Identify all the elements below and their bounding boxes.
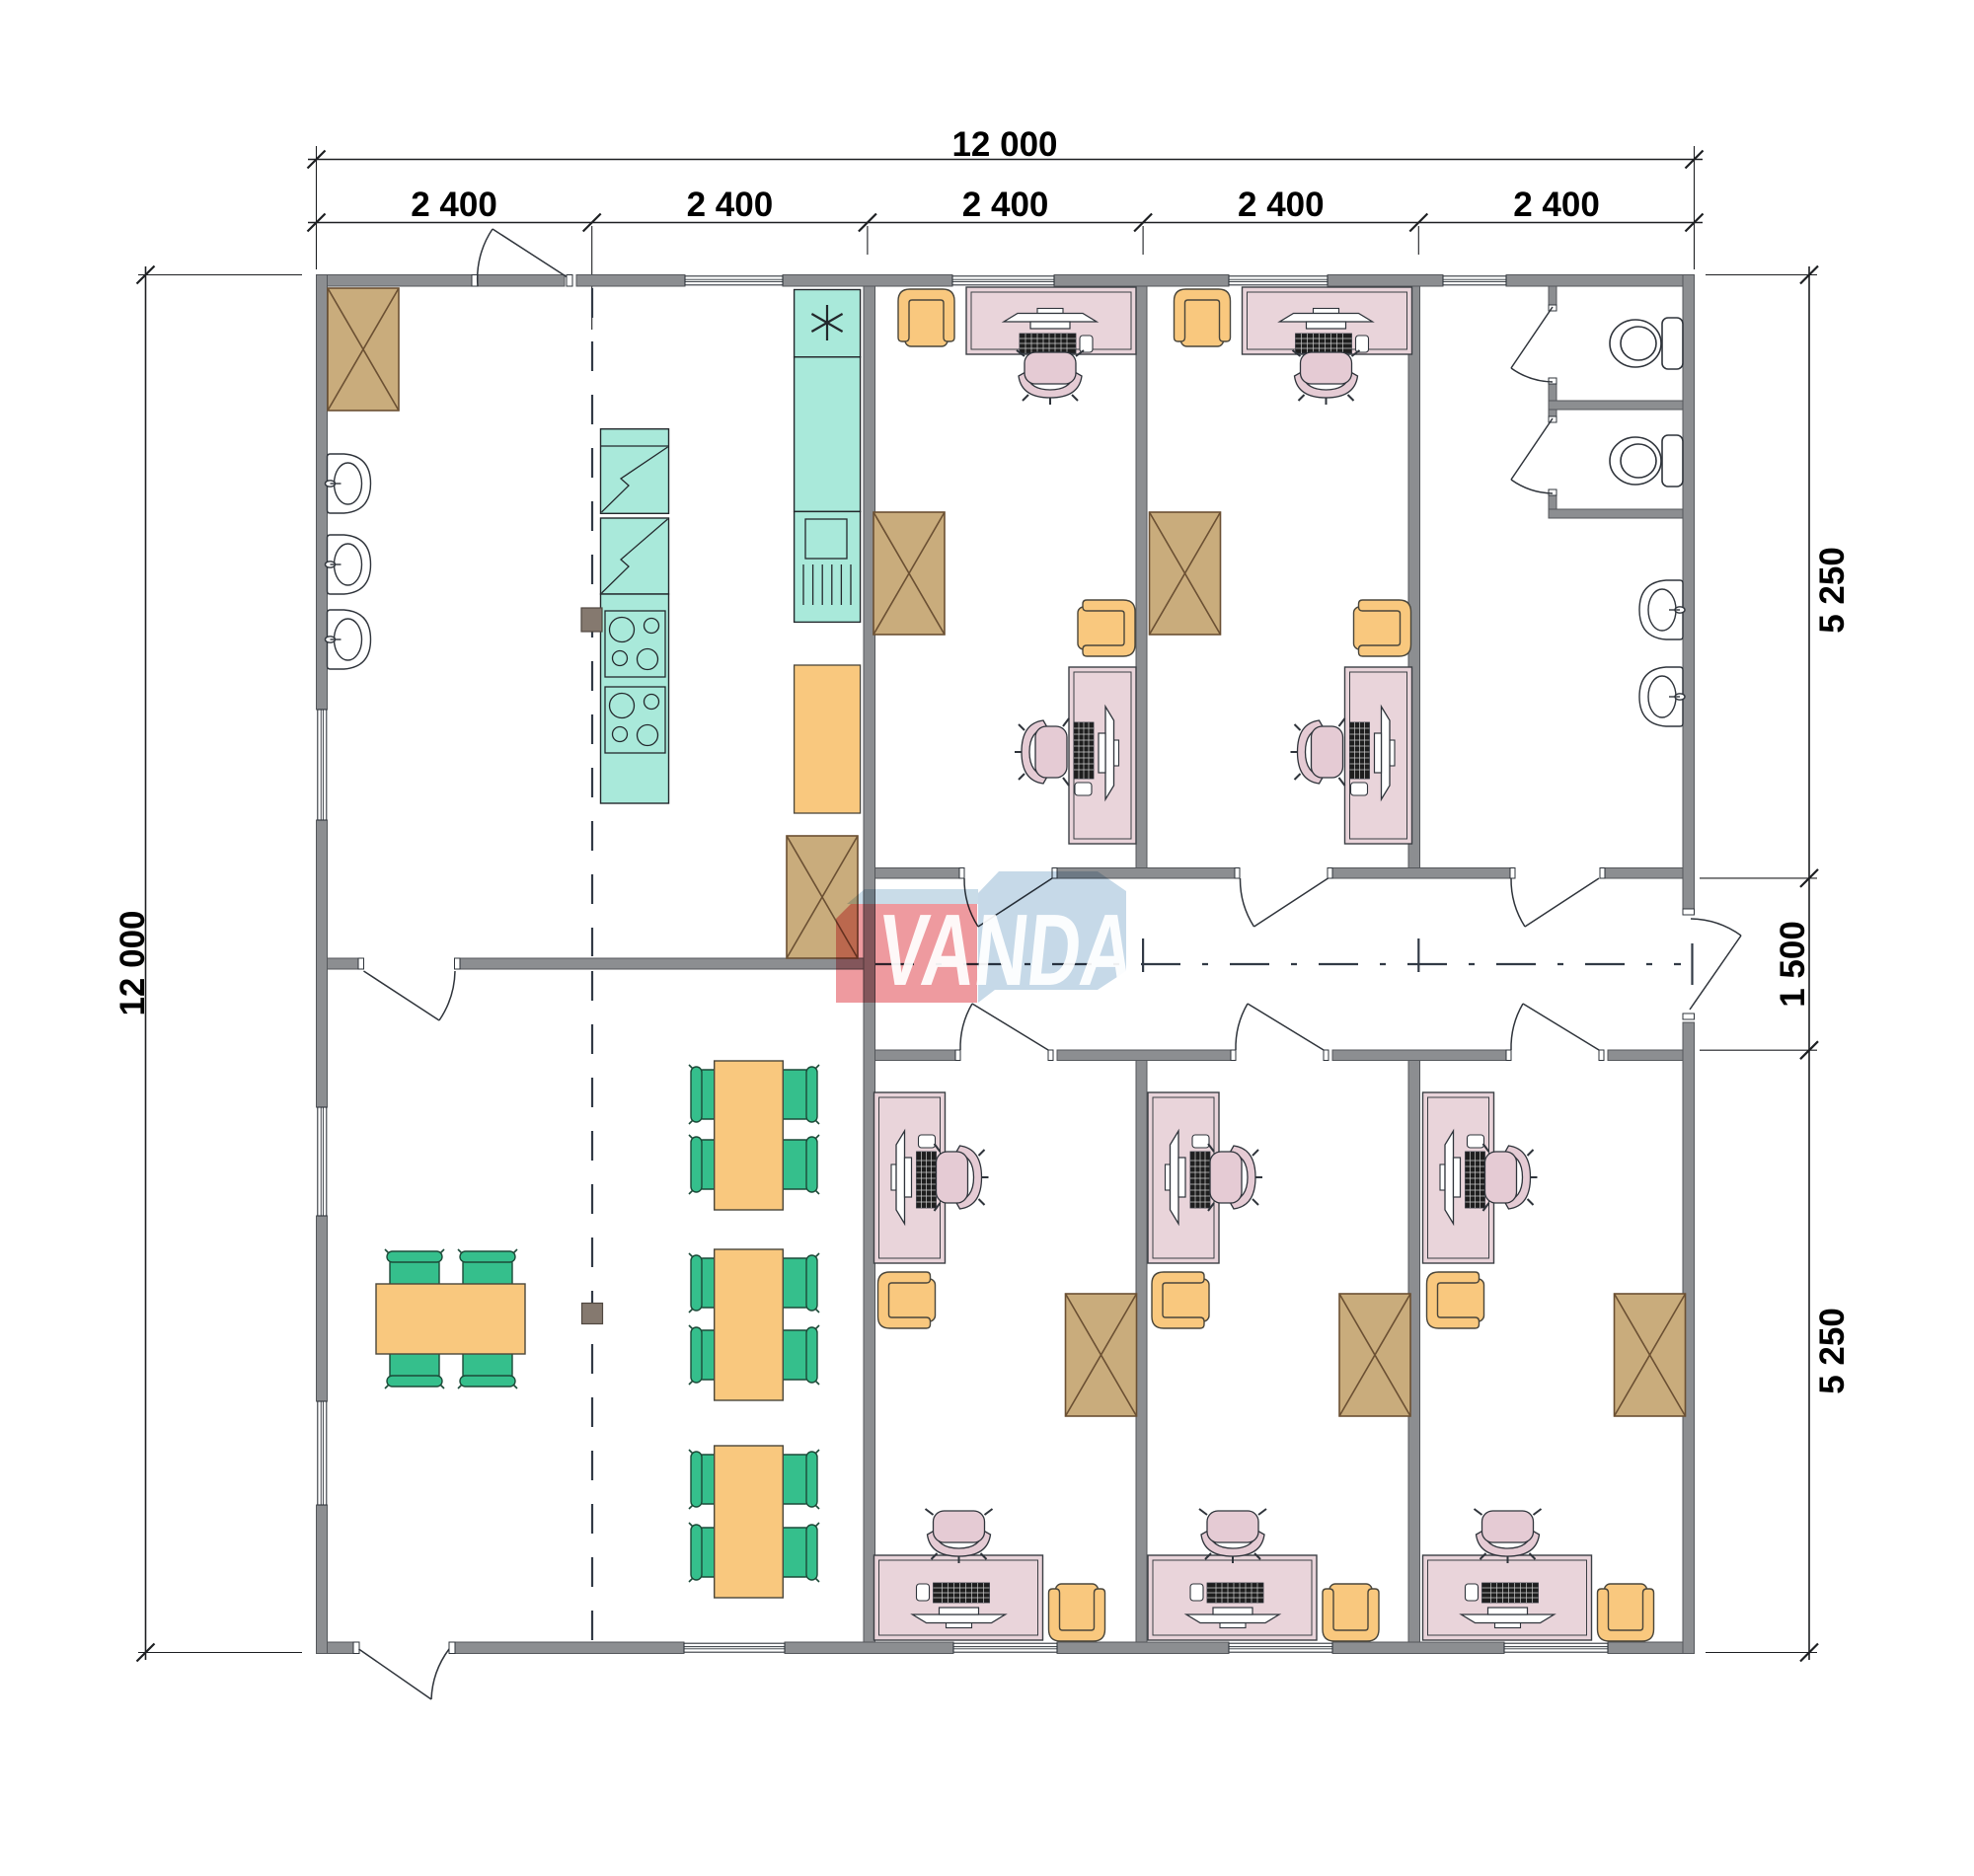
- svg-text:5 250: 5 250: [1813, 1308, 1852, 1394]
- svg-text:2 400: 2 400: [687, 186, 774, 224]
- svg-text:2 400: 2 400: [1513, 186, 1600, 224]
- svg-text:2 400: 2 400: [411, 186, 497, 224]
- svg-text:12 000: 12 000: [114, 910, 152, 1015]
- svg-text:12 000: 12 000: [951, 125, 1057, 164]
- svg-text:2 400: 2 400: [1238, 186, 1325, 224]
- svg-text:2 400: 2 400: [962, 186, 1049, 224]
- svg-text:5 250: 5 250: [1813, 547, 1852, 634]
- svg-text:VANDA: VANDA: [873, 893, 1140, 1007]
- svg-text:1 500: 1 500: [1774, 921, 1812, 1008]
